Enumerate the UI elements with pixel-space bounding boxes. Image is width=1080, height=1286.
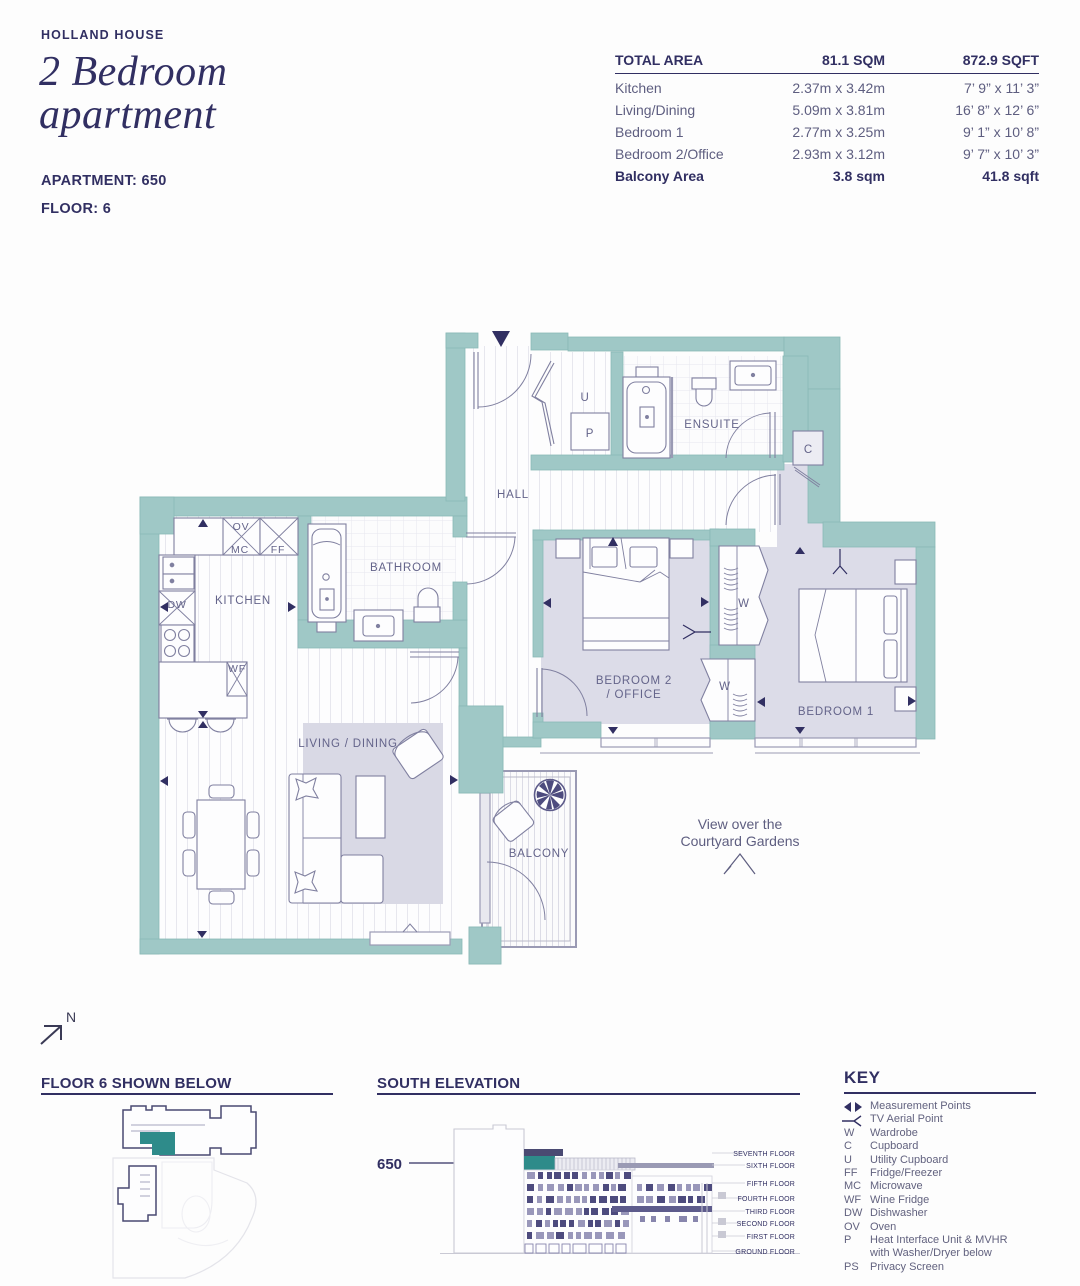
svg-text:FIRST FLOOR: FIRST FLOOR — [747, 1234, 795, 1241]
svg-text:SECOND FLOOR: SECOND FLOOR — [737, 1221, 795, 1228]
svg-text:WF: WF — [228, 663, 246, 675]
svg-text:KITCHEN: KITCHEN — [215, 595, 271, 607]
svg-text:LIVING / DINING: LIVING / DINING — [298, 738, 398, 750]
svg-text:BEDROOM 2: BEDROOM 2 — [596, 675, 672, 687]
svg-text:Courtyard Gardens: Courtyard Gardens — [680, 833, 799, 849]
svg-text:ENSUITE: ENSUITE — [684, 419, 739, 431]
svg-text:FIFTH FLOOR: FIFTH FLOOR — [747, 1181, 795, 1188]
svg-text:N: N — [66, 1009, 76, 1025]
svg-text:W: W — [738, 598, 750, 610]
svg-text:HALL: HALL — [497, 489, 529, 501]
svg-text:DW: DW — [167, 599, 186, 611]
svg-text:650: 650 — [377, 1156, 402, 1173]
svg-text:U: U — [580, 392, 589, 404]
svg-text:SIXTH FLOOR: SIXTH FLOOR — [746, 1163, 795, 1170]
svg-text:OV: OV — [233, 521, 250, 533]
svg-text:P: P — [586, 428, 594, 440]
svg-text:BEDROOM 1: BEDROOM 1 — [798, 706, 874, 718]
svg-text:View over the: View over the — [698, 816, 783, 832]
svg-text:BALCONY: BALCONY — [509, 848, 570, 860]
svg-text:FF: FF — [271, 544, 285, 556]
svg-text:W: W — [719, 681, 731, 693]
svg-text:GROUND FLOOR: GROUND FLOOR — [735, 1249, 795, 1256]
svg-text:MC: MC — [231, 544, 249, 556]
svg-text:FOURTH FLOOR: FOURTH FLOOR — [738, 1196, 796, 1203]
svg-text:C: C — [804, 444, 812, 456]
svg-text:/ OFFICE: / OFFICE — [607, 689, 662, 701]
svg-text:BATHROOM: BATHROOM — [370, 562, 442, 574]
svg-text:THIRD FLOOR: THIRD FLOOR — [745, 1209, 795, 1216]
svg-text:SEVENTH FLOOR: SEVENTH FLOOR — [733, 1151, 795, 1158]
